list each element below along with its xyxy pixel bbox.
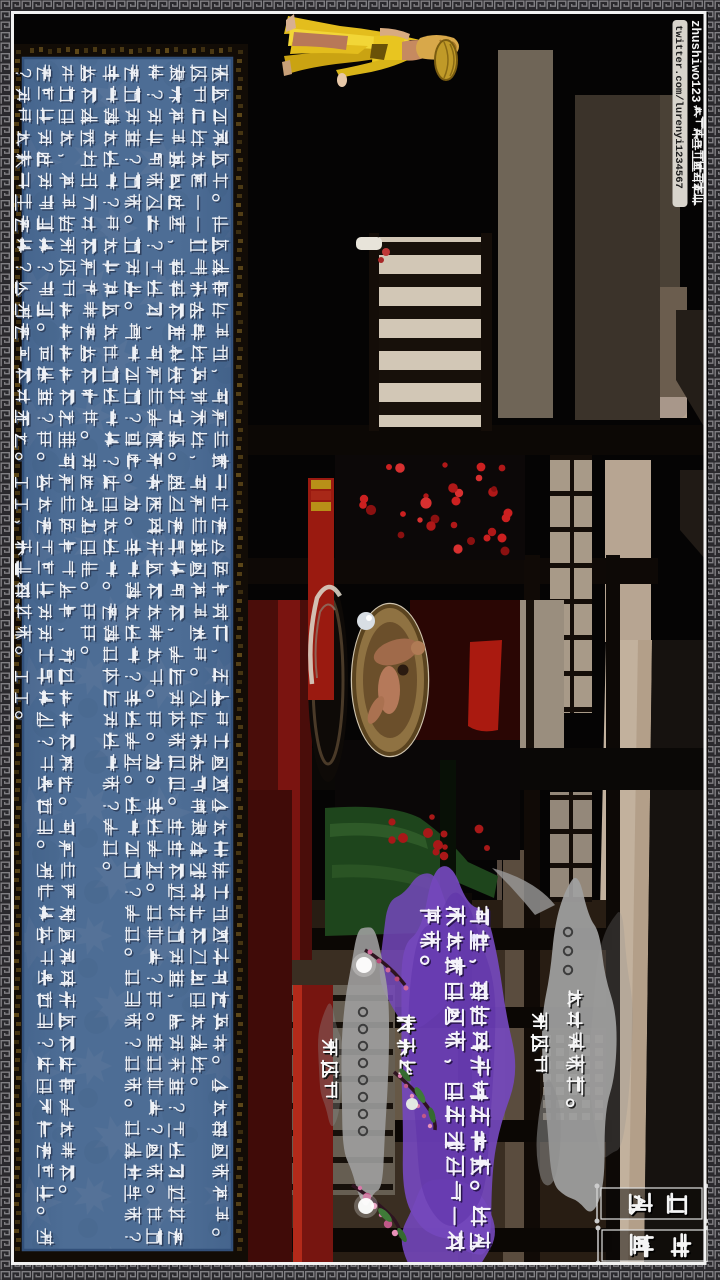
svg-text:zhushiwo123: zhushiwo123	[688, 20, 702, 103]
svg-text:twitter.com/lurenyi1234567: twitter.com/lurenyi1234567	[672, 25, 684, 189]
